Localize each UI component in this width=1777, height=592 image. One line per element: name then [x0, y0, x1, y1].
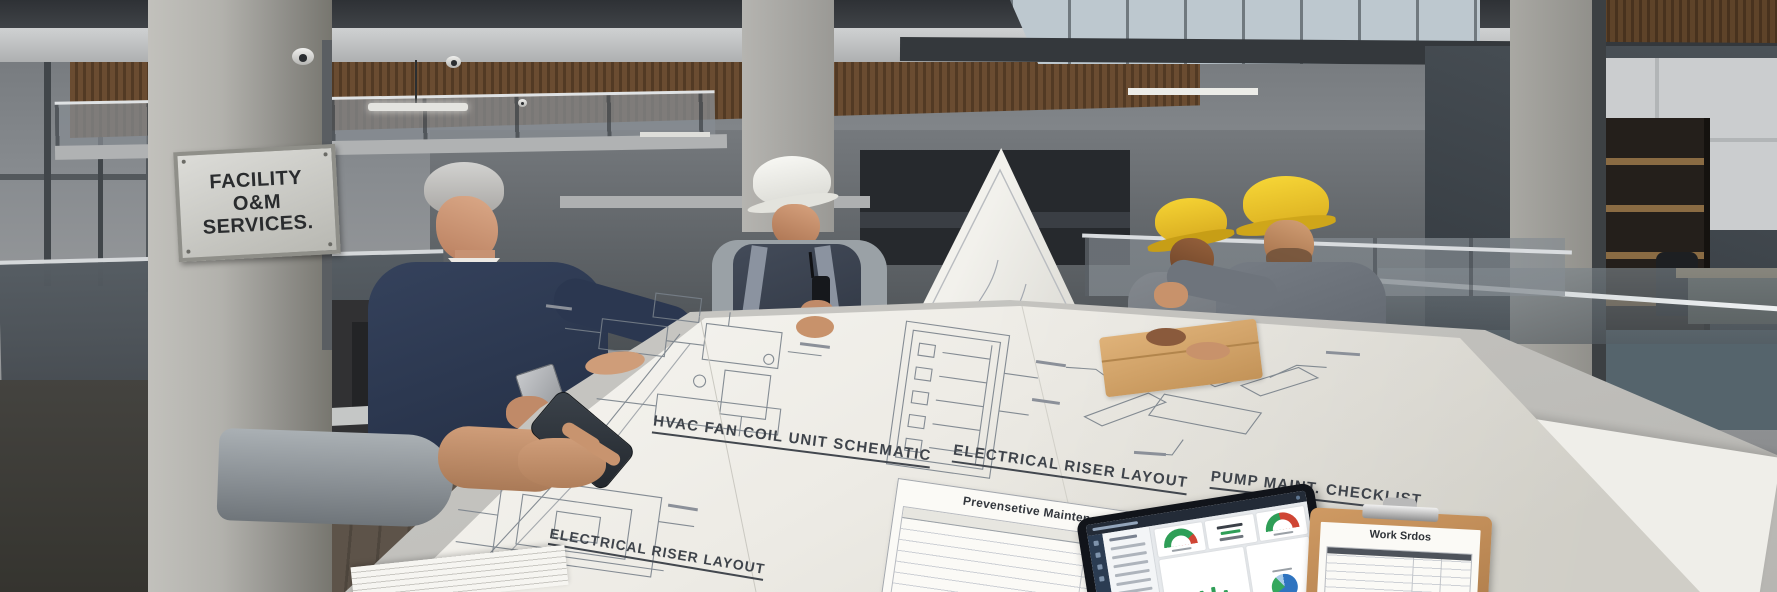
clipboard-table — [1324, 546, 1472, 592]
red-gauge — [1263, 510, 1299, 532]
nav-icon — [1095, 552, 1101, 558]
pie-label — [1272, 567, 1292, 572]
clipboard-table-header — [1327, 547, 1471, 561]
gauge-label — [1273, 531, 1293, 536]
worker-yellow-right-hand-on-table — [1186, 342, 1230, 360]
menu-item — [1115, 569, 1150, 577]
green-gauge — [1162, 526, 1198, 548]
menu-item — [1118, 587, 1153, 592]
menu-item — [1109, 534, 1137, 541]
stats-card — [1205, 514, 1257, 549]
stat-line — [1220, 534, 1244, 541]
clipboard-paper: Work Srdos — [1317, 522, 1481, 592]
atrium-scene: FACILITY O&M SERVICES. — [0, 0, 1777, 592]
bar-chart — [1180, 579, 1235, 592]
clipboard-clip — [1362, 504, 1439, 522]
nav-icon — [1099, 576, 1105, 582]
clipboard-title: Work Srdos — [1320, 526, 1480, 546]
nav-icon — [1097, 564, 1103, 570]
gauge-card-left — [1154, 522, 1206, 557]
worker-yellow-left-hand — [1146, 328, 1186, 346]
gauge-card-right — [1256, 506, 1308, 541]
stat-line — [1221, 529, 1241, 535]
menu-item — [1116, 578, 1151, 586]
foreground-arm-sleeve — [216, 428, 454, 528]
bar — [1211, 587, 1218, 592]
menu-item — [1112, 551, 1147, 559]
envelope-flap — [1102, 341, 1259, 362]
tablet-status-icon — [1296, 495, 1301, 500]
worker-vest-hand-on-sheet — [796, 316, 834, 338]
nav-icon — [1093, 540, 1099, 546]
menu-item — [1113, 560, 1148, 568]
pie-chart — [1270, 572, 1300, 592]
menu-item — [1111, 542, 1146, 550]
clipboard: Work Srdos — [1306, 507, 1493, 592]
gauge-label — [1172, 547, 1192, 552]
